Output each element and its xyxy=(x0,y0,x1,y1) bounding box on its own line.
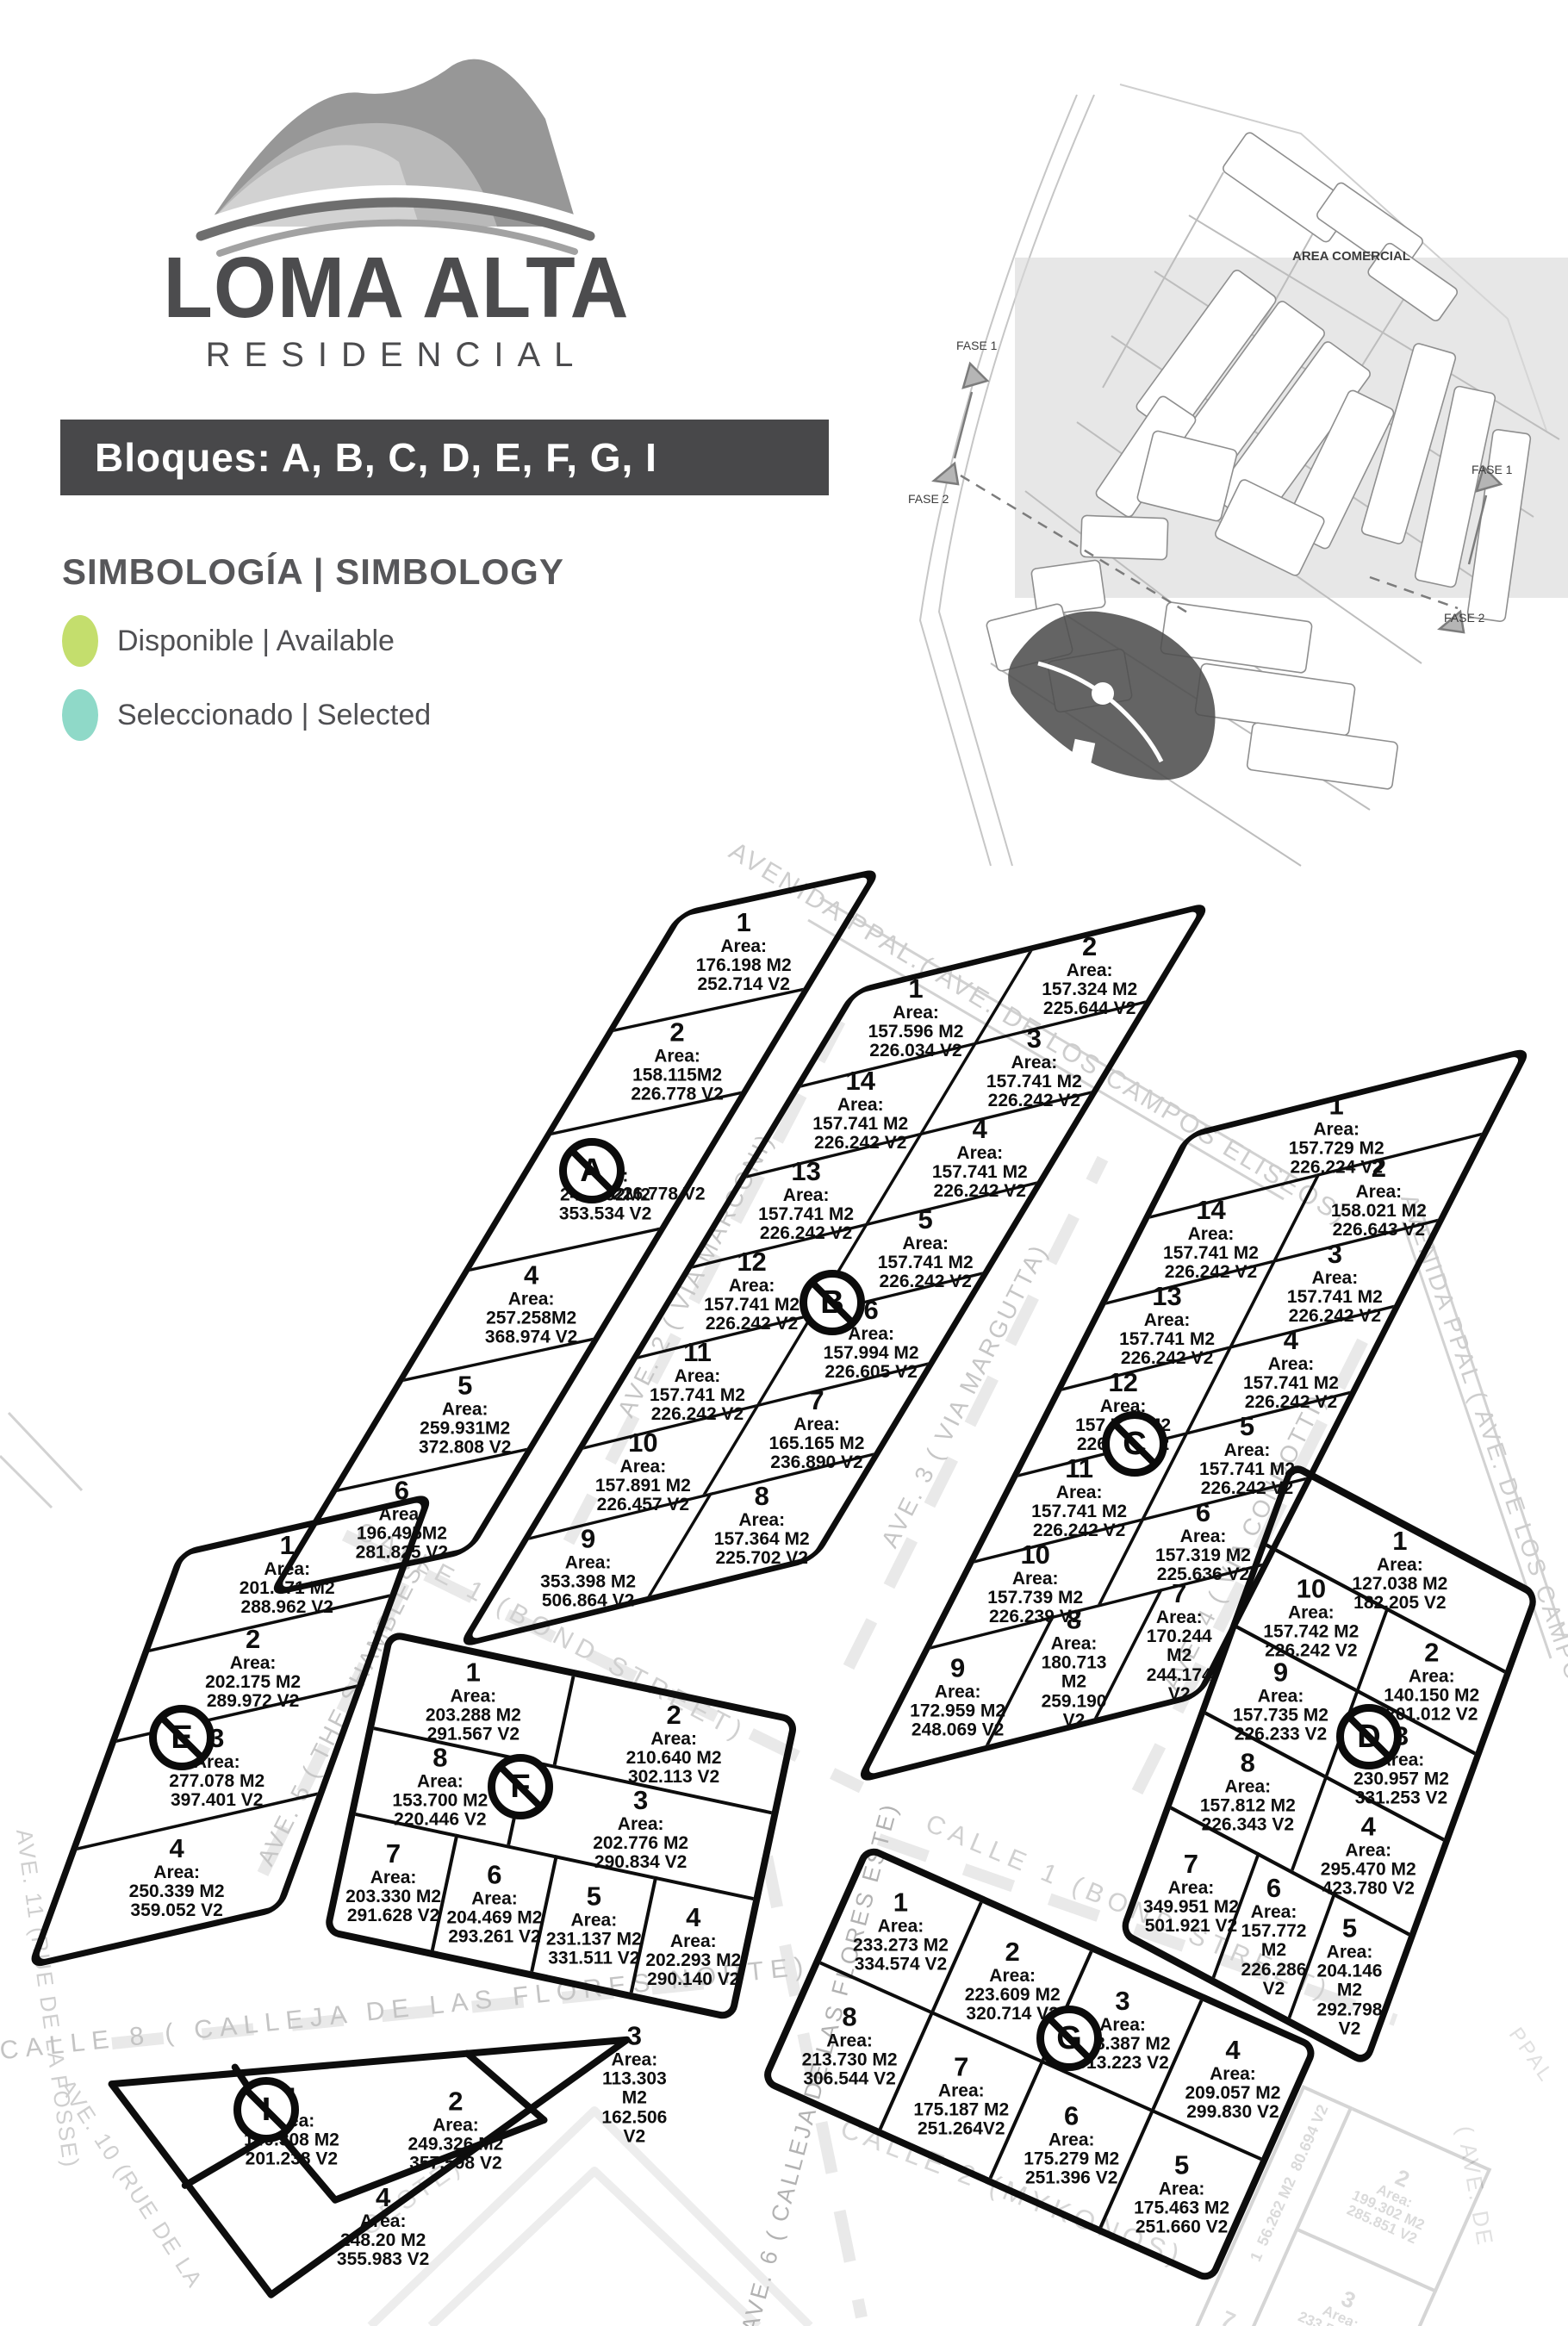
area-label: Area: xyxy=(545,1911,641,1930)
lot-m2: 204.469 M2 xyxy=(446,1909,542,1928)
lot-m2: 127.038 M2 xyxy=(1352,1575,1447,1594)
area-label: Area: xyxy=(240,1560,335,1579)
lot-number: 2 xyxy=(205,1626,301,1654)
lot-v2: 291.628 V2 xyxy=(345,1906,441,1925)
area-label: Area: xyxy=(768,1415,864,1434)
lot-number: 8 xyxy=(1028,1607,1120,1635)
area-label: Area: xyxy=(913,2081,1009,2100)
lot-m2: 157.891 M2 xyxy=(595,1477,691,1496)
lot-m2: 170.244 M2 xyxy=(1136,1627,1223,1666)
lot-m2: 249.326 M2 xyxy=(408,2136,503,2155)
lot-v2: 251.660 V2 xyxy=(1134,2218,1229,2237)
lot-v2: 201.238 V2 xyxy=(244,2150,339,2169)
lot-number: 8 xyxy=(801,2004,897,2032)
lot-m2: 157.741 M2 xyxy=(1287,1288,1383,1307)
lot-m2: 157.596 M2 xyxy=(868,1023,963,1042)
lot-number: 9 xyxy=(1233,1658,1328,1687)
area-label: Area: xyxy=(877,1235,973,1253)
lot-v2: 299.830 V2 xyxy=(1185,2103,1280,2122)
area-label: Area: xyxy=(1143,1879,1239,1898)
area-label: Area: xyxy=(129,1863,225,1882)
area-label: Area: xyxy=(419,1400,511,1419)
lot-m2: 175.463 M2 xyxy=(1134,2199,1229,2217)
area-label: Area: xyxy=(593,1815,688,1834)
lot-number: 10 xyxy=(595,1429,691,1458)
area-label: Area: xyxy=(987,1570,1083,1589)
lot-number: 9 xyxy=(910,1655,1005,1683)
lot-m2: 157.741 M2 xyxy=(1163,1244,1259,1263)
lot-number: 12 xyxy=(704,1248,800,1277)
lot-number: 3 xyxy=(986,1025,1082,1054)
area-label: Area: xyxy=(485,1290,577,1309)
lot-I-2[interactable]: 2Area:249.326 M2357.598 V2 xyxy=(408,2087,503,2174)
lot-m2: 157.741 M2 xyxy=(1243,1374,1339,1393)
area-label: Area: xyxy=(986,1054,1082,1073)
area-label: Area: xyxy=(812,1096,908,1115)
lot-number: 3 xyxy=(1287,1241,1383,1269)
lot-number: 5 xyxy=(1134,2151,1229,2180)
lot-number: 6 xyxy=(1229,1875,1317,1903)
lot-m2: 176.198 M2 xyxy=(695,957,791,976)
lot-m2: 172.959 M2 xyxy=(910,1702,1005,1721)
lot-number: 1 xyxy=(695,910,791,938)
lot-number: 4 xyxy=(645,1904,741,1932)
lot-number: 14 xyxy=(812,1067,908,1096)
lot-m2: 209.057 M2 xyxy=(1185,2084,1280,2103)
lot-m2: 157.741 M2 xyxy=(1199,1460,1295,1479)
lot-number: 13 xyxy=(1119,1283,1215,1311)
lot-number: 1 xyxy=(852,1888,948,1917)
lot-D-5[interactable]: 5Area:204.146 M2292.798 V2 xyxy=(1288,1892,1409,2057)
marker-F: F xyxy=(488,1754,553,1819)
lot-I-4[interactable]: 4Area:248.20 M2355.983 V2 xyxy=(337,2184,429,2270)
area-label: Area: xyxy=(1185,2065,1280,2084)
lot-number: 4 xyxy=(1185,2037,1280,2065)
lot-m2: 157.741 M2 xyxy=(931,1163,1027,1182)
area-label: Area: xyxy=(337,2212,429,2231)
lot-v2: 334.574 V2 xyxy=(852,1956,948,1975)
lot-number: 7 xyxy=(345,1840,441,1869)
lot-number: 1 xyxy=(426,1658,521,1687)
lot-m2: 157.741 M2 xyxy=(812,1115,908,1134)
marker-letter: D xyxy=(1357,1720,1380,1753)
lot-v2: 252.714 V2 xyxy=(695,976,791,995)
area-label: Area: xyxy=(1243,1355,1339,1374)
marker-C: C xyxy=(1102,1411,1167,1477)
lot-m2: 157.741 M2 xyxy=(704,1296,800,1315)
lot-number: 2 xyxy=(408,2087,503,2116)
lot-number: 5 xyxy=(1199,1413,1295,1441)
lot-number: 2 xyxy=(964,1938,1060,1967)
area-label: Area: xyxy=(601,2050,667,2069)
block-I: 1Area:140.308 M2201.238 V22Area:249.326 … xyxy=(96,2029,678,2325)
lot-m2: 203.330 M2 xyxy=(345,1888,441,1906)
lot-v2: 506.864 V2 xyxy=(540,1592,636,1611)
area-label: Area: xyxy=(1134,2180,1229,2199)
lot-number: 7 xyxy=(913,2053,1009,2081)
lot-m2: 295.470 M2 xyxy=(1321,1861,1416,1880)
area-label: Area: xyxy=(540,1553,636,1572)
lot-m2: 157.324 M2 xyxy=(1042,980,1137,999)
lot-v2: 331.511 V2 xyxy=(545,1950,641,1968)
lot-number: 1 xyxy=(240,1532,335,1560)
lot-number: 3 xyxy=(593,1787,688,1815)
lot-m2: 157.812 M2 xyxy=(1200,1797,1296,1816)
lot-number: 10 xyxy=(1263,1575,1359,1603)
lot-m2: 157.742 M2 xyxy=(1263,1622,1359,1641)
area-label: Area: xyxy=(1042,961,1137,980)
lot-m2: 153.700 M2 xyxy=(393,1792,488,1811)
lot-number: 6 xyxy=(1024,2102,1119,2130)
area-label: Area: xyxy=(1024,2130,1119,2149)
lot-v2: 290.140 V2 xyxy=(645,1970,741,1989)
lot-number: 6 xyxy=(446,1862,542,1890)
lot-m2: 157.741 M2 xyxy=(877,1253,973,1272)
area-label: Area: xyxy=(426,1687,521,1706)
area-label: Area: xyxy=(205,1654,301,1673)
lot-number: 13 xyxy=(758,1158,854,1186)
lot-v2: 306.544 V2 xyxy=(801,2070,897,2089)
page: { "header": { "logo_title": "LOMA ALTA",… xyxy=(0,0,1568,2326)
lot-m2: 223.609 M2 xyxy=(964,1986,1060,2005)
lot-number: 4 xyxy=(1321,1813,1416,1842)
lot-number: 4 xyxy=(1243,1327,1339,1355)
area-label: Area: xyxy=(345,1869,441,1888)
area-label: Area: xyxy=(801,2031,897,2050)
lot-v2: 292.798 V2 xyxy=(1306,2001,1394,2040)
lot-m2: 250.339 M2 xyxy=(129,1883,225,1902)
lot-v2: 225.702 V2 xyxy=(714,1550,810,1569)
area-label: Area: xyxy=(1155,1527,1251,1546)
lot-number: 14 xyxy=(1163,1197,1259,1225)
lot-number: 5 xyxy=(1306,1915,1394,1944)
lot-m2: 201.471 M2 xyxy=(240,1580,335,1599)
area-label: Area: xyxy=(1263,1603,1359,1622)
lot-number: 2 xyxy=(632,1019,724,1048)
lot-number: 11 xyxy=(650,1339,745,1367)
area-label: Area: xyxy=(1287,1269,1383,1288)
area-label: Area: xyxy=(758,1186,854,1205)
lot-m2: 202.776 M2 xyxy=(593,1834,688,1853)
lot-m2: 157.735 M2 xyxy=(1233,1707,1328,1726)
lot-m2: 277.078 M2 xyxy=(169,1772,264,1791)
area-label: Area: xyxy=(1321,1842,1416,1861)
marker-I: I xyxy=(233,2077,299,2143)
lot-number: 8 xyxy=(1200,1749,1296,1777)
lot-m2: 259.931M2 xyxy=(419,1420,511,1439)
lot-v2: 162.506 V2 xyxy=(601,2108,667,2147)
area-label: Area: xyxy=(1028,1635,1120,1654)
area-label: Area: xyxy=(645,1932,741,1951)
lot-number: 1 xyxy=(1352,1527,1447,1556)
area-label: Area: xyxy=(910,1682,1005,1701)
lot-number: 4 xyxy=(129,1835,225,1863)
area-label: Area: xyxy=(695,937,791,956)
lot-number: 4 xyxy=(485,1262,577,1290)
lot-number: 2 xyxy=(1384,1639,1479,1667)
lot-I-3[interactable]: 3Area:113.303 M2162.506 V2 xyxy=(601,2022,667,2146)
area-label: Area: xyxy=(1136,1608,1223,1627)
area-label: Area: xyxy=(1384,1667,1479,1686)
marker-letter: C xyxy=(1123,1427,1146,1460)
area-label: Area: xyxy=(446,1890,542,1909)
area-label: Area: xyxy=(1352,1556,1447,1575)
area-label: Area: xyxy=(852,1917,948,1936)
lot-number: 7 xyxy=(1143,1850,1239,1879)
lot-m2: 157.741 M2 xyxy=(650,1386,745,1405)
lot-number: 1 xyxy=(868,975,963,1004)
lot-m2: 157.741 M2 xyxy=(758,1205,854,1224)
lot-m2: 202.175 M2 xyxy=(205,1673,301,1692)
marker-letter: G xyxy=(1056,2022,1082,2055)
lot-m2: 353.398 M2 xyxy=(540,1573,636,1592)
lot-number: 2 xyxy=(625,1701,721,1730)
lot-number: 12 xyxy=(1075,1369,1171,1397)
lot-m2: 213.730 M2 xyxy=(801,2051,897,2070)
lot-m2: 257.258M2 xyxy=(485,1309,577,1328)
area-label: Area: xyxy=(868,1004,963,1023)
lot-number: 10 xyxy=(987,1541,1083,1570)
lot-m2: 230.957 M2 xyxy=(1353,1770,1449,1789)
area-label: Area: xyxy=(1306,1944,1394,1962)
area-label: Area: xyxy=(931,1144,1027,1163)
area-label: Area: xyxy=(1199,1441,1295,1460)
lot-v2: 251.264V2 xyxy=(913,2120,1009,2139)
lot-number: 8 xyxy=(714,1483,810,1511)
lot-m2: 158.021 M2 xyxy=(1331,1202,1427,1221)
lot-m2: 157.319 M2 xyxy=(1155,1546,1251,1565)
lot-m2: 175.187 M2 xyxy=(913,2100,1009,2119)
lot-m2: 158.115M2 xyxy=(632,1067,724,1085)
area-label: Area: xyxy=(1229,1903,1317,1922)
lot-number: 4 xyxy=(931,1116,1027,1144)
lot-number: 8 xyxy=(393,1744,488,1773)
marker-letter: A xyxy=(580,1154,603,1187)
area-label: Area: xyxy=(1031,1483,1127,1502)
lot-m2: 157.994 M2 xyxy=(823,1344,918,1363)
lot-number: 2 xyxy=(1331,1154,1427,1183)
lot-m2: 175.279 M2 xyxy=(1024,2149,1119,2168)
lot-m2: 157.772 M2 xyxy=(1229,1922,1317,1961)
lot-number: 4 xyxy=(337,2184,429,2212)
lot-m2: 180.713 M2 xyxy=(1028,1654,1120,1693)
area-label: Area: xyxy=(625,1729,721,1748)
marker-letter: B xyxy=(820,1286,843,1319)
area-label: Area: xyxy=(1289,1121,1384,1140)
area-label: Area: xyxy=(714,1511,810,1530)
lot-m2: 248.20 M2 xyxy=(337,2231,429,2250)
lot-m2: 203.288 M2 xyxy=(426,1706,521,1725)
lot-m2: 204.146 M2 xyxy=(1306,1962,1394,2001)
lot-m2: 157.741 M2 xyxy=(986,1073,1082,1091)
lot-number: 5 xyxy=(545,1882,641,1911)
marker-A: A xyxy=(559,1138,625,1203)
lot-number: 1 xyxy=(1289,1092,1384,1121)
marker-B: B xyxy=(800,1270,865,1335)
lot-m2: 157.741 M2 xyxy=(1119,1330,1215,1349)
lot-number: 3 xyxy=(601,2022,667,2050)
lot-m2: 233.273 M2 xyxy=(852,1936,948,1955)
marker-letter: E xyxy=(171,1721,192,1754)
lot-number: 2 xyxy=(1042,933,1137,961)
lot-m2: 165.165 M2 xyxy=(768,1434,864,1453)
area-label: Area: xyxy=(595,1458,691,1477)
area-label: Area: xyxy=(1200,1777,1296,1796)
lot-v2: 359.052 V2 xyxy=(129,1902,225,1921)
area-label: Area: xyxy=(1331,1183,1427,1202)
marker-E: E xyxy=(149,1705,215,1770)
area-label: Area: xyxy=(704,1277,800,1296)
lot-m2: 157.741 M2 xyxy=(1031,1502,1127,1521)
area-label: Area: xyxy=(408,2116,503,2135)
area-label: Area: xyxy=(650,1367,745,1386)
area-label: Area: xyxy=(393,1773,488,1792)
lot-v2: 353.534 V2 xyxy=(559,1205,651,1224)
lot-number: 5 xyxy=(877,1206,973,1235)
lot-v2: 357.598 V2 xyxy=(408,2155,503,2174)
marker-letter: F xyxy=(510,1770,530,1803)
area-label: Area: xyxy=(632,1047,724,1066)
lot-v2: 293.261 V2 xyxy=(446,1928,542,1947)
marker-D: D xyxy=(1336,1704,1402,1769)
marker-letter: I xyxy=(262,2093,271,2126)
area-label: Area: xyxy=(1163,1225,1259,1244)
lot-m2: 113.303 M2 xyxy=(601,2069,667,2108)
area-label: Area: xyxy=(1119,1311,1215,1330)
lot-number: 6 xyxy=(1155,1499,1251,1527)
lot-number: 7 xyxy=(1136,1580,1223,1608)
lot-v2: 501.921 V2 xyxy=(1143,1917,1239,1936)
marker-G: G xyxy=(1036,2006,1102,2071)
lot-m2: 231.137 M2 xyxy=(545,1930,641,1949)
lot-v2: 251.396 V2 xyxy=(1024,2169,1119,2188)
lot-number: 7 xyxy=(768,1387,864,1415)
lot-m2: 157.364 M2 xyxy=(714,1530,810,1549)
lot-m2: 202.293 M2 xyxy=(645,1951,741,1970)
area-label: Area: xyxy=(1233,1687,1328,1706)
lot-m2: 349.951 M2 xyxy=(1143,1898,1239,1917)
lot-v2: 355.983 V2 xyxy=(337,2250,429,2269)
lot-m2: 140.150 M2 xyxy=(1384,1686,1479,1705)
lot-number: 9 xyxy=(540,1526,636,1554)
area-label: Area: xyxy=(964,1967,1060,1986)
lot-m2: 210.640 M2 xyxy=(625,1749,721,1768)
lot-overlap-text: 226.778 V2 xyxy=(613,1185,705,1203)
lot-number: 5 xyxy=(419,1372,511,1401)
